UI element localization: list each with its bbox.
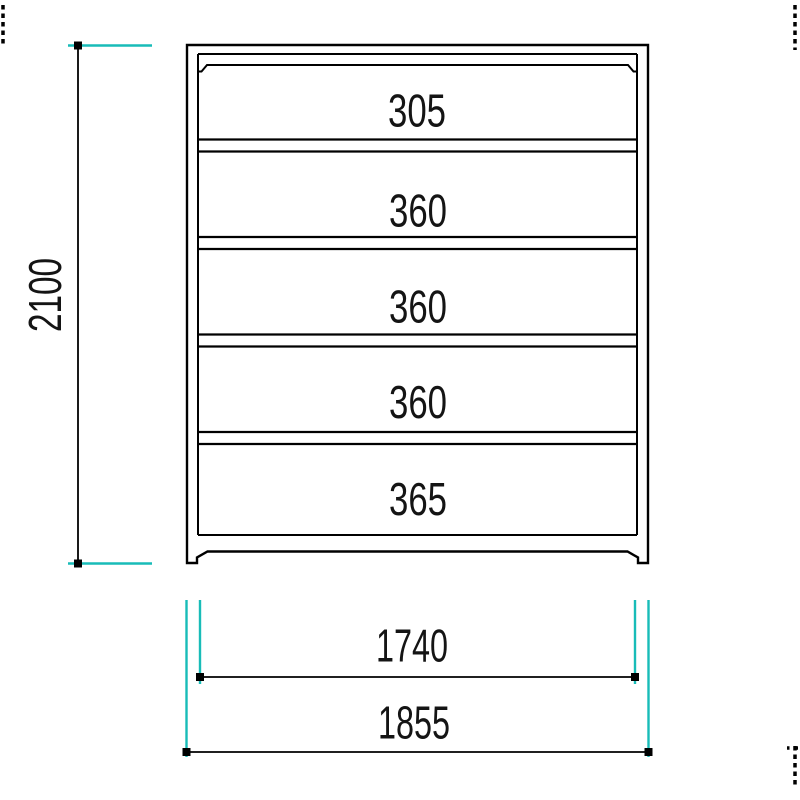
compartment-label-2: 360 <box>389 185 447 237</box>
dimension-terminator <box>196 673 204 681</box>
dimension-terminator <box>74 560 82 568</box>
shelf-board-4 <box>198 432 637 444</box>
dimension-terminator <box>74 42 82 50</box>
shelf-board-3 <box>198 335 637 347</box>
inner-width-dimension-label: 1740 <box>376 620 448 672</box>
compartment-label-3: 360 <box>389 281 447 333</box>
height-dimension-label: 2100 <box>19 258 71 332</box>
dimension-terminator <box>631 673 639 681</box>
cad-drawing: 2100 305 360 360 360 365 1740 1855 <box>0 0 800 800</box>
drawing-canvas: 2100 305 360 360 360 365 1740 1855 <box>0 0 800 800</box>
dimension-terminator <box>183 748 191 756</box>
ceiling-line <box>198 54 637 72</box>
compartment-label-1: 305 <box>388 85 446 137</box>
shelf-board-2 <box>198 237 637 249</box>
shelf-board-1 <box>198 140 637 152</box>
dimension-overall-height: 2100 <box>19 42 152 568</box>
compartment-label-4: 360 <box>389 376 447 428</box>
overall-width-dimension-label: 1855 <box>378 697 450 749</box>
compartment-label-5: 365 <box>389 473 447 525</box>
dimension-inner-width: 1740 <box>196 600 639 684</box>
dimension-terminator <box>645 748 653 756</box>
